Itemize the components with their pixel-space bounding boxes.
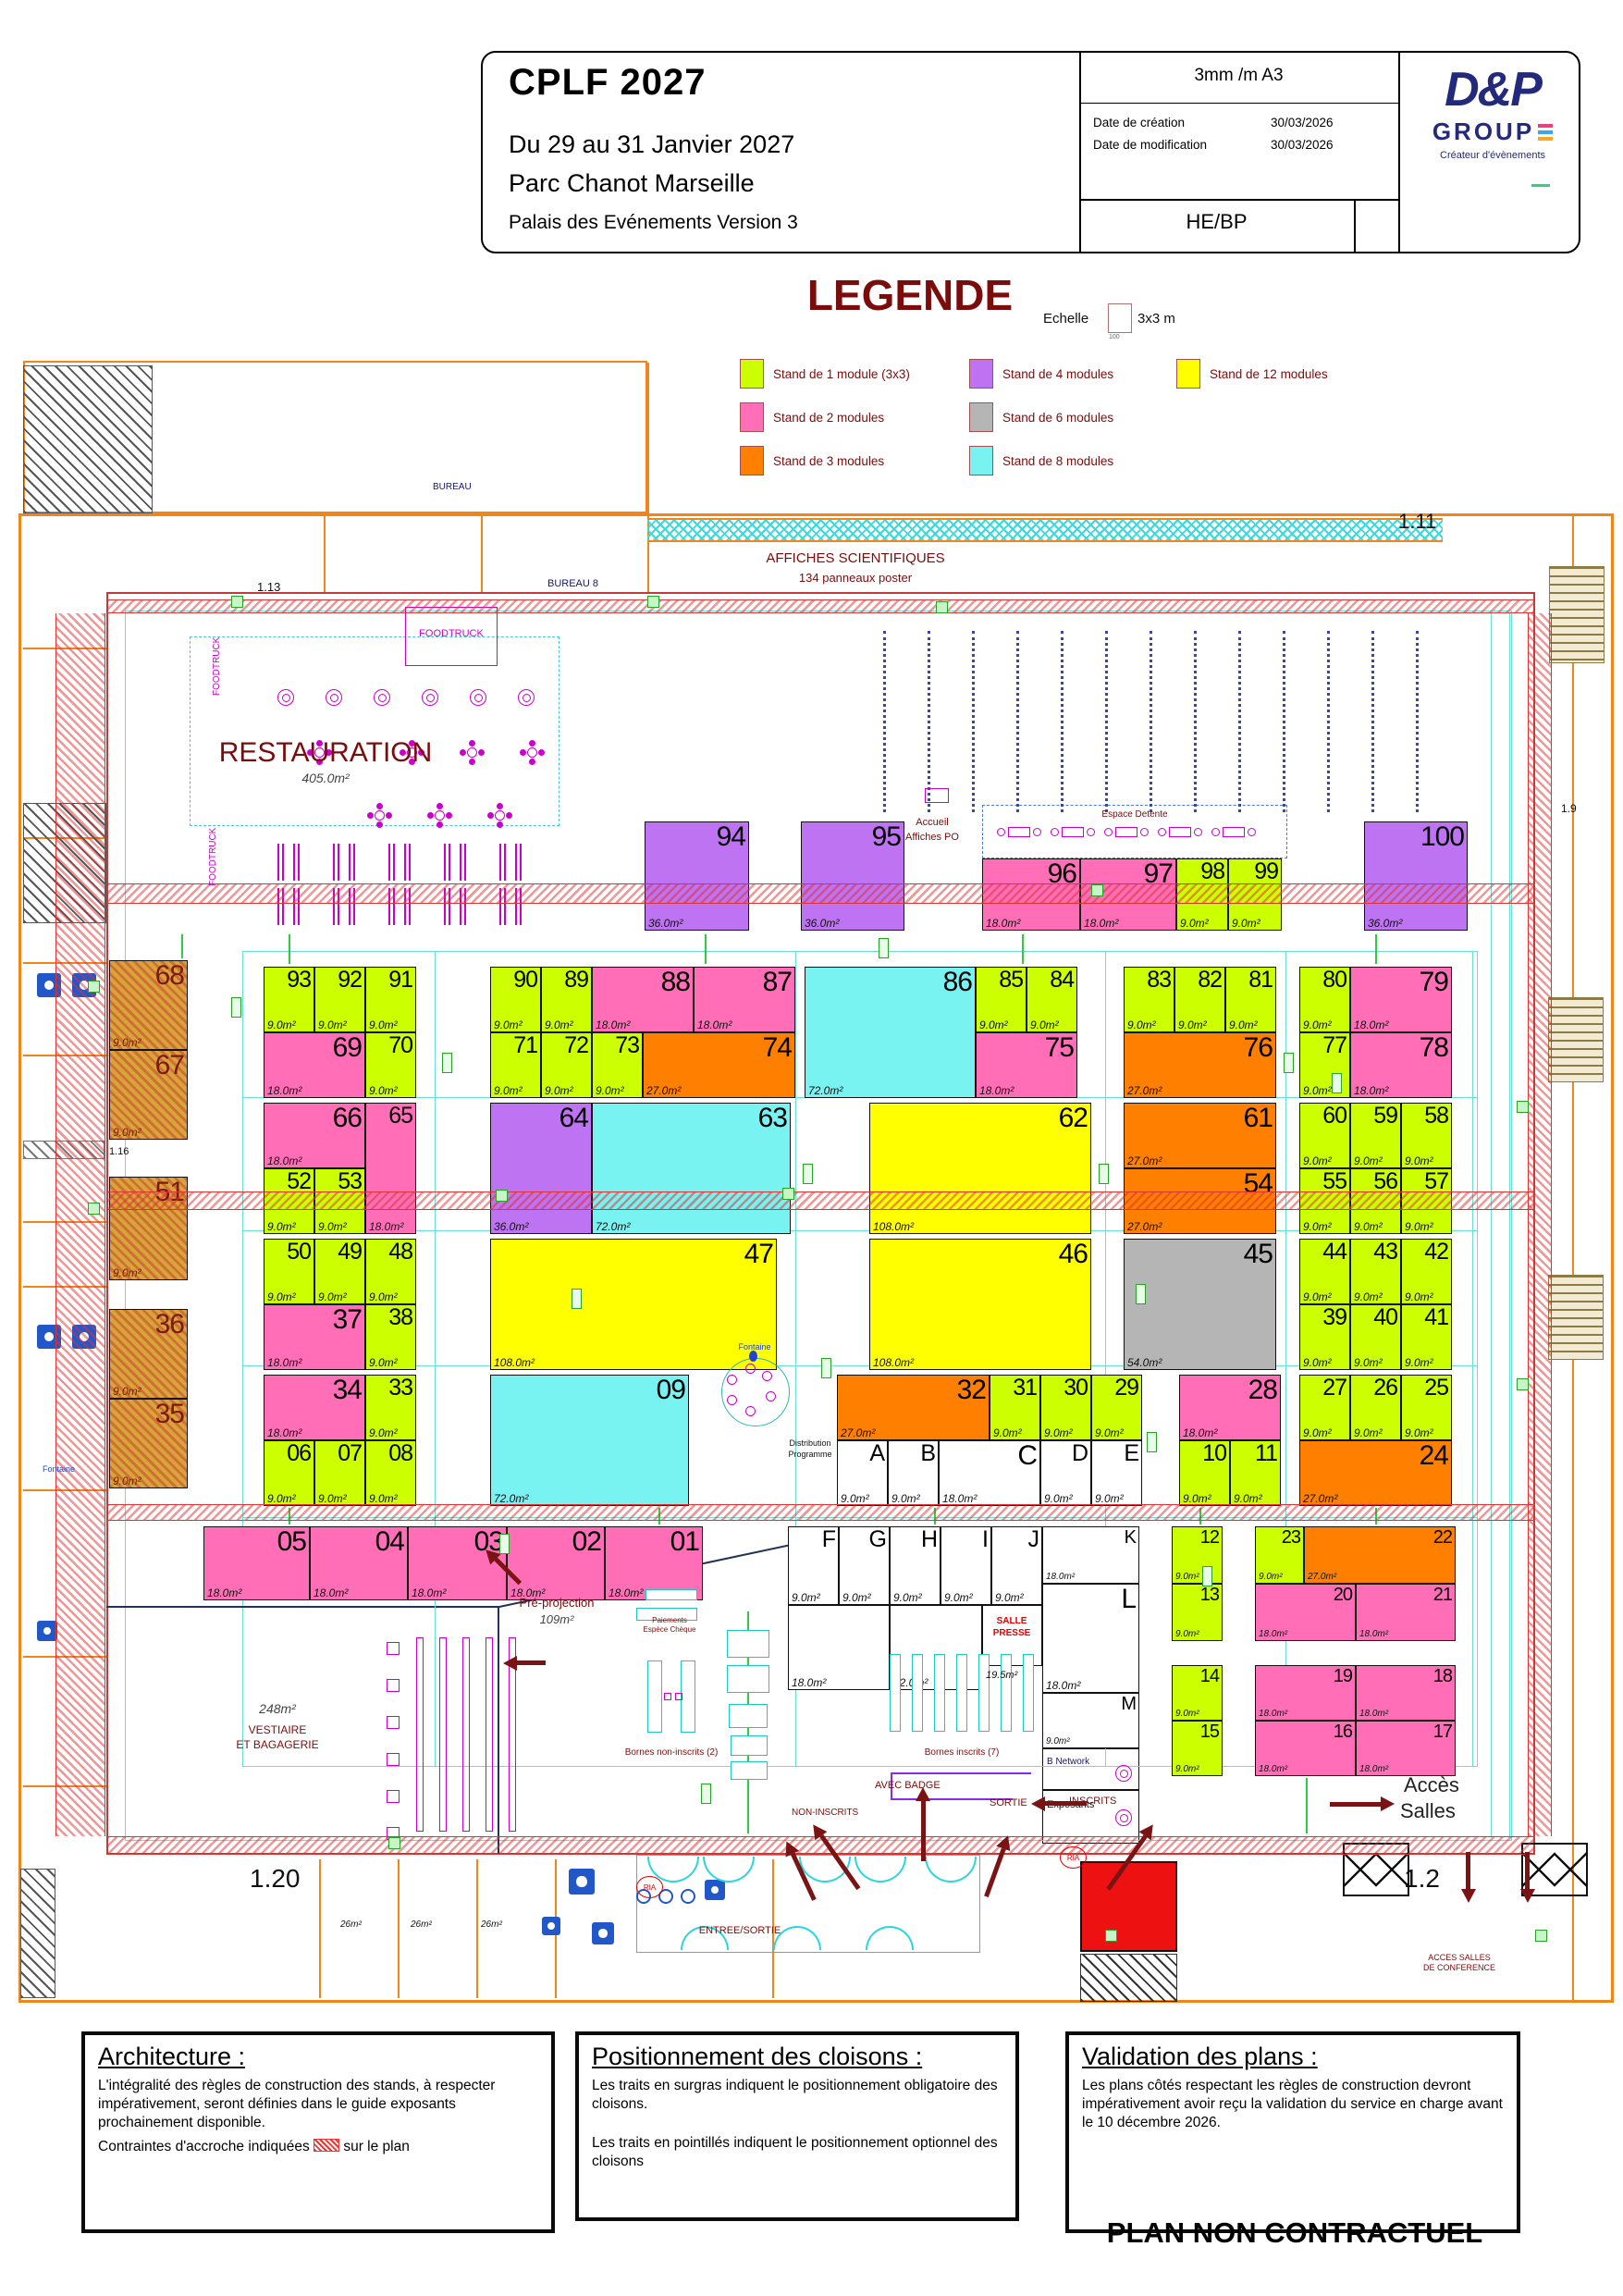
table-with-chairs-icon <box>375 810 385 821</box>
kiosk-icon <box>731 1761 768 1780</box>
wall-line <box>398 1859 400 1998</box>
stand-80: 809.0m² <box>1299 967 1350 1032</box>
round-table-icon <box>326 689 342 706</box>
logo-tagline: Créateur d'évènements <box>1409 150 1576 161</box>
poster-row-line <box>1194 631 1197 812</box>
stand-88: 8818.0m² <box>592 967 694 1032</box>
legend-title: LEGENDE <box>807 270 1013 320</box>
legend-item: Stand de 8 modules <box>969 446 1113 475</box>
fountain-water-icon <box>749 1351 757 1362</box>
stand-35: 359.0m² <box>109 1399 188 1488</box>
technical-block <box>1080 1861 1177 1952</box>
echelle-value: 3x3 m <box>1137 311 1175 327</box>
stand-62: 62108.0m² <box>869 1103 1091 1234</box>
logo-dash-icon <box>1531 184 1550 187</box>
furniture-icon <box>387 1753 400 1766</box>
dimension-line <box>289 934 290 964</box>
plan-label: Bornes non-inscrits (2) <box>625 1748 719 1759</box>
direction-arrow-icon <box>916 1787 930 1861</box>
wall-outline <box>1572 513 1614 2003</box>
plan-label: 1.13 <box>257 581 280 594</box>
stand-30: 309.0m² <box>1040 1375 1091 1440</box>
round-table-icon <box>374 689 390 706</box>
fountain-seat-icon <box>745 1406 756 1416</box>
buffet-counter-icon <box>333 844 355 881</box>
lounge-table-icon <box>1158 827 1202 837</box>
plan-label: SORTIE <box>990 1798 1027 1809</box>
wall-line <box>1491 613 1492 1836</box>
cloisons-note-box: Positionnement des cloisons : Les traits… <box>575 2031 1019 2221</box>
title-block: CPLF 2027 Du 29 au 31 Janvier 2027 Parc … <box>481 51 1580 253</box>
plan-label: FOODTRUCK <box>209 828 219 886</box>
stand-08: 089.0m² <box>365 1440 416 1506</box>
plan-label: BUREAU <box>433 483 472 493</box>
legend-swatch-icon <box>969 402 993 432</box>
stand-H: H9.0m² <box>890 1526 941 1605</box>
stand-zone: 18.0m² <box>788 1605 890 1690</box>
dimension-line <box>181 934 183 958</box>
wall-line <box>498 1606 499 1855</box>
lounge-table-icon <box>1211 827 1256 837</box>
accordion-wall-icon <box>647 518 1443 542</box>
stand-75: 7518.0m² <box>976 1032 1077 1098</box>
stand-60: 609.0m² <box>1299 1103 1350 1168</box>
kiosk-icon <box>729 1704 768 1728</box>
legend-item-label: Stand de 4 modules <box>1002 367 1113 381</box>
plan-label: 1.16 <box>109 1147 129 1158</box>
furniture-icon <box>664 1693 671 1700</box>
stand-48: 489.0m² <box>365 1239 416 1304</box>
table-with-chairs-icon <box>527 747 537 758</box>
round-table-icon <box>1115 1765 1132 1782</box>
stand-33: 339.0m² <box>365 1375 416 1440</box>
stand-A: A9.0m² <box>837 1440 888 1506</box>
queue-line <box>892 1772 1031 1774</box>
stand-19: 1918.0m² <box>1255 1665 1356 1721</box>
stand-K: K18.0m² <box>1042 1526 1139 1584</box>
architecture-title: Architecture : <box>98 2043 538 2071</box>
venue: Parc Chanot Marseille <box>509 169 755 198</box>
stand-L: L18.0m² <box>1042 1584 1139 1693</box>
legend-swatch-icon <box>740 446 764 475</box>
buffet-counter-icon <box>277 844 300 881</box>
direction-arrow-icon <box>503 1656 546 1671</box>
logo-dp-monogram: D&P <box>1409 62 1576 117</box>
stand-41: 419.0m² <box>1401 1304 1452 1370</box>
stand-50: 509.0m² <box>264 1239 314 1304</box>
poster-row-line <box>1327 631 1330 812</box>
stand-84: 849.0m² <box>1027 967 1077 1032</box>
kiosk-icon <box>727 1630 769 1658</box>
legend-item: Stand de 12 modules <box>1176 359 1328 389</box>
direction-arrow-icon <box>1031 1796 1087 1811</box>
architecture-text: L'intégralité des règles de construction… <box>98 2077 538 2132</box>
emergency-exit-icon <box>388 1837 400 1849</box>
plan-label: FOODTRUCK <box>419 629 484 640</box>
plan-label: Affiches PO <box>905 833 959 844</box>
hatch-band <box>55 613 105 1836</box>
legend-item-label: Stand de 3 modules <box>773 454 884 468</box>
emergency-exit-icon <box>647 596 659 608</box>
dimension-marker-icon <box>442 1053 452 1073</box>
architecture-note-box: Architecture : L'intégralité des règles … <box>81 2031 555 2233</box>
stand-38: 389.0m² <box>365 1304 416 1370</box>
table-with-chairs-icon <box>435 810 445 821</box>
table-with-chairs-icon <box>467 747 477 758</box>
wall-line <box>324 515 326 592</box>
furniture-icon <box>387 1716 400 1729</box>
fountain-seat-icon <box>727 1395 737 1405</box>
stand-78: 7818.0m² <box>1350 1032 1452 1098</box>
plan-label: 134 panneaux poster <box>799 572 912 585</box>
hatch-band <box>106 1191 1535 1210</box>
plan-label: ET BAGAGERIE <box>236 1739 318 1751</box>
plan-label: DE CONFERENCE <box>1423 1964 1495 1972</box>
non-contractual-note: PLAN NON CONTRACTUEL <box>1064 2216 1526 2250</box>
plan-version: Palais des Evénements Version 3 <box>509 212 798 234</box>
stand-92: 929.0m² <box>314 967 365 1032</box>
kiosk-icon <box>727 1665 769 1693</box>
stand-66: 6618.0m² <box>264 1103 365 1168</box>
round-table-icon <box>1115 1809 1132 1826</box>
emergency-exit-icon <box>1517 1378 1529 1390</box>
stand-86: 8672.0m² <box>805 967 976 1098</box>
fire-hose-ria-icon: RIA <box>636 1876 663 1898</box>
direction-arrow-icon <box>1520 1852 1535 1903</box>
stand-29: 299.0m² <box>1091 1375 1142 1440</box>
wall-line <box>1472 951 1473 1767</box>
fountain-seat-icon <box>762 1371 772 1381</box>
stand-G: G9.0m² <box>839 1526 890 1605</box>
round-table-icon <box>518 689 535 706</box>
sanitary-icon <box>542 1917 560 1935</box>
stand-24: 2427.0m² <box>1299 1440 1452 1506</box>
stand-61: 6127.0m² <box>1124 1103 1276 1168</box>
stand-C: C18.0m² <box>939 1440 1040 1506</box>
dimension-line <box>1306 1778 1308 1833</box>
stand-46: 46108.0m² <box>869 1239 1091 1370</box>
legend-item: Stand de 2 modules <box>740 402 884 432</box>
logo-group-word: GROUP <box>1432 117 1553 146</box>
dimension-line <box>1022 934 1024 964</box>
legend-item: Stand de 6 modules <box>969 402 1113 432</box>
dimension-marker-icon <box>701 1784 711 1804</box>
kiosk-icon <box>890 1654 901 1732</box>
poster-row-line <box>1016 631 1019 812</box>
furniture-icon <box>439 1637 447 1832</box>
dimension-marker-icon <box>879 938 889 958</box>
poster-row-line <box>883 631 886 812</box>
stand-81: 819.0m² <box>1225 967 1276 1032</box>
stand-79: 7918.0m² <box>1350 967 1452 1032</box>
round-table-icon <box>422 689 438 706</box>
sanitary-icon <box>37 1621 57 1641</box>
stand-64: 6436.0m² <box>490 1103 592 1234</box>
hatch-swatch-icon <box>314 2139 339 2152</box>
plan-label: 1.20 <box>250 1865 301 1892</box>
stand-87: 8718.0m² <box>694 967 795 1032</box>
stand-28: 2818.0m² <box>1179 1375 1281 1440</box>
divider <box>1079 199 1398 201</box>
round-table-icon <box>277 689 294 706</box>
wall-line <box>106 1606 499 1608</box>
dimension-marker-icon <box>572 1289 582 1309</box>
buffet-counter-icon <box>388 844 411 881</box>
legend-swatch-icon <box>969 446 993 475</box>
furniture-icon <box>486 1637 493 1832</box>
wall-line <box>435 951 436 1767</box>
stand-43: 439.0m² <box>1350 1239 1401 1304</box>
wall-line <box>1285 951 1286 1767</box>
stand-02: 0218.0m² <box>507 1526 605 1600</box>
poster-row-line <box>1061 631 1064 812</box>
dimension-marker-icon <box>499 1534 510 1554</box>
stand-72: 729.0m² <box>541 1032 592 1098</box>
plan-label: SALLE <box>997 1617 1027 1627</box>
emergency-exit-icon <box>1517 1101 1529 1113</box>
wall-line <box>481 515 483 592</box>
stairs-icon <box>1548 997 1604 1082</box>
stand-71: 719.0m² <box>490 1032 541 1098</box>
furniture-icon <box>387 1790 400 1803</box>
legend-item-label: Stand de 1 module (3x3) <box>773 367 910 381</box>
dimension-marker-icon <box>1284 1053 1294 1073</box>
validation-title: Validation des plans : <box>1082 2043 1504 2071</box>
plan-label: Bornes inscrits (7) <box>925 1748 1000 1759</box>
plan-label: RESTAURATION <box>219 738 433 768</box>
plan-label: NON-INSCRITS <box>792 1808 858 1819</box>
hatch-band <box>1528 613 1552 1836</box>
sanitary-icon <box>592 1922 614 1944</box>
plan-label: Espace Detente <box>1101 810 1167 821</box>
plan-label: Distribution <box>789 1439 830 1448</box>
plan-label: 1.9 <box>1561 803 1577 815</box>
legend-item: Stand de 1 module (3x3) <box>740 359 910 389</box>
hatch-band <box>106 1504 1535 1521</box>
plan-label: 109m² <box>540 1613 574 1626</box>
plan-label: Programme <box>788 1450 831 1459</box>
emergency-exit-icon <box>936 601 948 613</box>
plan-label: 26m² <box>340 1920 362 1931</box>
dimension-marker-icon <box>1147 1432 1157 1452</box>
stand-15: 159.0m² <box>1172 1721 1223 1776</box>
stand-44: 449.0m² <box>1299 1239 1350 1304</box>
stand-07: 079.0m² <box>314 1440 365 1506</box>
furniture-icon <box>462 1637 470 1832</box>
stand-70: 709.0m² <box>365 1032 416 1098</box>
stand-J: J9.0m² <box>991 1526 1042 1605</box>
plan-label: Fontaine <box>738 1343 770 1352</box>
stand-40: 409.0m² <box>1350 1304 1401 1370</box>
kiosk-icon <box>681 1660 695 1733</box>
plan-label: VESTIAIRE <box>249 1724 307 1736</box>
stand-F: F9.0m² <box>788 1526 839 1605</box>
poster-row-line <box>928 631 930 812</box>
emergency-exit-icon <box>496 1190 508 1202</box>
poster-row-line <box>1105 631 1108 812</box>
stand-25: 259.0m² <box>1401 1375 1452 1440</box>
wall-line <box>647 363 649 592</box>
hatched-area <box>20 1869 55 1998</box>
washbasin-icon <box>681 1889 695 1904</box>
plan-label: Fontaine <box>43 1465 75 1474</box>
echelle-scale-box-icon <box>1108 303 1132 333</box>
hatched-area <box>1080 1954 1177 2002</box>
stand-58: 589.0m² <box>1401 1103 1452 1168</box>
legend-item: Stand de 4 modules <box>969 359 1113 389</box>
stand-05: 0518.0m² <box>203 1526 310 1600</box>
stand-67: 679.0m² <box>109 1050 188 1140</box>
legend-item-label: Stand de 6 modules <box>1002 411 1113 425</box>
plan-label: Accès <box>1404 1774 1459 1796</box>
kiosk-icon <box>1001 1654 1012 1732</box>
poster-row-line <box>1416 631 1419 812</box>
lounge-table-icon <box>1051 827 1095 837</box>
stairs-icon <box>1549 566 1605 663</box>
floor-plan-sheet: CPLF 2027 Du 29 au 31 Janvier 2027 Parc … <box>0 0 1623 2296</box>
legend-swatch-icon <box>740 359 764 389</box>
plan-label: B Network <box>1047 1758 1089 1768</box>
stand-M: M9.0m² <box>1042 1693 1139 1748</box>
direction-arrow-icon <box>1330 1796 1395 1811</box>
furniture-icon <box>416 1637 424 1832</box>
stand-69: 6918.0m² <box>264 1032 365 1098</box>
hatched-area <box>23 365 153 513</box>
kiosk-icon <box>1023 1654 1034 1732</box>
stand-59: 599.0m² <box>1350 1103 1401 1168</box>
dimension-marker-icon <box>1099 1164 1109 1184</box>
emergency-exit-icon <box>88 1203 100 1215</box>
buffet-counter-icon <box>499 844 522 881</box>
fountain-seat-icon <box>727 1375 737 1385</box>
plan-label: BUREAU 8 <box>547 579 598 590</box>
stand-65: 6518.0m² <box>365 1103 416 1234</box>
logo-e-bars-icon <box>1538 124 1553 141</box>
stand-93: 939.0m² <box>264 967 314 1032</box>
stand-47: 47108.0m² <box>490 1239 777 1370</box>
stand-90: 909.0m² <box>490 967 541 1032</box>
stand-31: 319.0m² <box>990 1375 1040 1440</box>
poster-row-line <box>1150 631 1152 812</box>
stand-26: 269.0m² <box>1350 1375 1401 1440</box>
legend-swatch-icon <box>969 359 993 389</box>
lounge-table-icon <box>1104 827 1149 837</box>
date-creation-label: Date de création <box>1093 116 1185 130</box>
stand-74: 7427.0m² <box>643 1032 795 1098</box>
direction-arrow-icon <box>1461 1852 1476 1903</box>
furniture-icon <box>925 788 949 803</box>
stand-39: 399.0m² <box>1299 1304 1350 1370</box>
validation-note-box: Validation des plans : Les plans côtés r… <box>1065 2031 1520 2233</box>
stand-E: E9.0m² <box>1091 1440 1142 1506</box>
stand-45: 4554.0m² <box>1124 1239 1276 1370</box>
emergency-exit-icon <box>1091 884 1103 896</box>
stand-12: 129.0m² <box>1172 1526 1223 1584</box>
poster-row-line <box>1371 631 1374 812</box>
stand-34: 3418.0m² <box>264 1375 365 1440</box>
stand-63: 6372.0m² <box>592 1103 791 1234</box>
stand-68: 689.0m² <box>109 960 188 1050</box>
validation-text: Les plans côtés respectant les règles de… <box>1082 2077 1504 2132</box>
plan-label: AVEC BADGE <box>875 1781 941 1792</box>
stand-18: 1818.0m² <box>1356 1665 1456 1721</box>
stand-32: 3227.0m² <box>837 1375 990 1440</box>
kiosk-icon <box>956 1654 967 1732</box>
stand-16: 1618.0m² <box>1255 1721 1356 1776</box>
stand-49: 499.0m² <box>314 1239 365 1304</box>
dimension-line <box>1375 934 1377 964</box>
kiosk-icon <box>912 1654 923 1732</box>
plan-label: 19.5m² <box>986 1671 1017 1682</box>
stand-11: 119.0m² <box>1230 1440 1281 1506</box>
poster-row-line <box>1238 631 1241 812</box>
stand-23: 239.0m² <box>1255 1526 1304 1584</box>
emergency-exit-icon <box>231 596 243 608</box>
stand-21: 2118.0m² <box>1356 1584 1456 1641</box>
date-modification-label: Date de modification <box>1093 138 1207 152</box>
stand-B: B9.0m² <box>888 1440 939 1506</box>
stand-27: 279.0m² <box>1299 1375 1350 1440</box>
dimension-marker-icon <box>821 1358 831 1378</box>
legend-item-label: Stand de 2 modules <box>773 411 884 425</box>
dp-group-logo: D&P GROUP Créateur d'évènements <box>1409 62 1576 161</box>
page-title: CPLF 2027 <box>509 62 707 104</box>
dimension-marker-icon <box>231 997 241 1018</box>
stand-36: 369.0m² <box>109 1309 188 1399</box>
hatch-band <box>106 599 1535 613</box>
plan-label: FOODTRUCK <box>213 637 223 696</box>
scale-note: 3mm /m A3 <box>1079 66 1398 86</box>
stand-73: 739.0m² <box>592 1032 643 1098</box>
event-dates: Du 29 au 31 Janvier 2027 <box>509 130 794 159</box>
plan-label: ENTREE/SORTIE <box>699 1926 781 1937</box>
plan-label: 405.0m² <box>301 772 349 785</box>
furniture-icon <box>387 1679 400 1692</box>
stand-14: 149.0m² <box>1172 1665 1223 1721</box>
stand-89: 899.0m² <box>541 967 592 1032</box>
poster-row-line <box>972 631 975 812</box>
dimension-marker-icon <box>1136 1284 1146 1304</box>
stand-13: 139.0m² <box>1172 1584 1223 1641</box>
sanitary-icon <box>705 1880 725 1900</box>
poster-row-line <box>1283 631 1285 812</box>
stand-76: 7627.0m² <box>1124 1032 1276 1098</box>
furniture-icon <box>675 1693 682 1700</box>
stand-04: 0418.0m² <box>310 1526 408 1600</box>
stand-06: 069.0m² <box>264 1440 314 1506</box>
wall-line <box>476 1859 478 1998</box>
wall-line <box>1509 613 1510 1836</box>
stand-20: 2018.0m² <box>1255 1584 1356 1641</box>
cloisons-title: Positionnement des cloisons : <box>592 2043 1002 2071</box>
stand-22: 2227.0m² <box>1304 1526 1456 1584</box>
dimension-marker-icon <box>803 1164 813 1184</box>
fountain-icon <box>721 1358 790 1426</box>
furniture-icon <box>387 1642 400 1655</box>
plan-label: PRESSE <box>993 1629 1031 1639</box>
stairs-icon <box>1548 1275 1604 1360</box>
lounge-table-icon <box>997 827 1041 837</box>
stand-10: 109.0m² <box>1179 1440 1230 1506</box>
fire-hose-ria-icon: RIA <box>1060 1846 1087 1869</box>
dimension-marker-icon <box>1332 1073 1342 1093</box>
kiosk-icon <box>731 1735 768 1756</box>
plan-label: AFFICHES SCIENTIFIQUES <box>766 551 944 566</box>
stand-77: 779.0m² <box>1299 1032 1350 1098</box>
emergency-exit-icon <box>782 1188 794 1200</box>
table-with-chairs-icon <box>495 810 505 821</box>
legend-swatch-icon <box>1176 359 1200 389</box>
